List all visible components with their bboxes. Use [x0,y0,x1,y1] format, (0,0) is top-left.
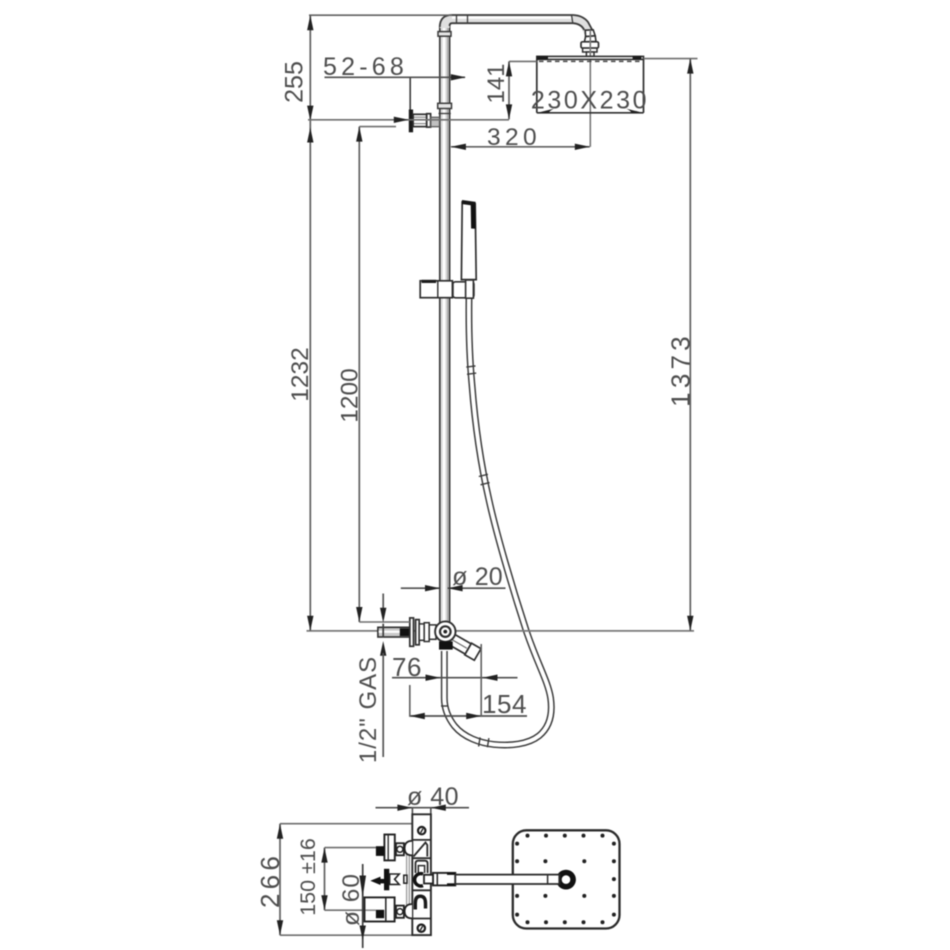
svg-text:320: 320 [487,124,541,151]
svg-text:141: 141 [483,63,510,103]
svg-text:ø 40: ø 40 [407,783,459,811]
svg-text:76: 76 [392,652,422,682]
svg-text:255: 255 [281,61,309,103]
svg-text:1200: 1200 [337,368,364,423]
svg-text:150 ±16: 150 ±16 [296,838,320,916]
svg-text:154: 154 [482,689,527,719]
svg-text:1373: 1373 [666,332,696,407]
svg-text:1232: 1232 [287,347,314,402]
svg-text:ø 20: ø 20 [452,563,503,591]
svg-text:1/2" GAS: 1/2" GAS [355,656,382,763]
svg-text:230X230: 230X230 [531,87,649,115]
svg-text:266: 266 [255,852,285,908]
svg-text:ø 60: ø 60 [338,873,365,926]
